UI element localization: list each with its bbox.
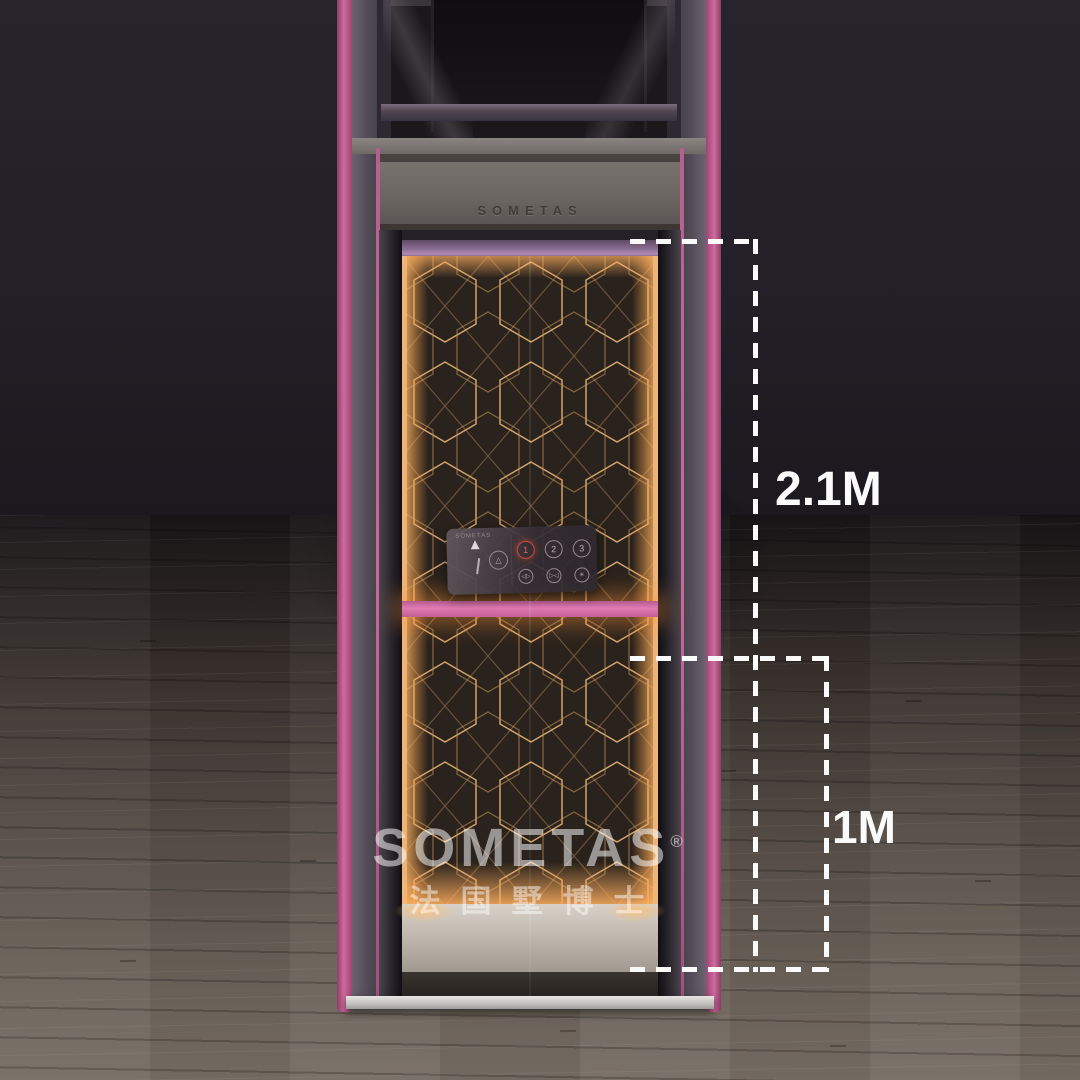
alarm-bell-icon: △ bbox=[495, 556, 501, 565]
floor-seam-mark bbox=[830, 1045, 846, 1047]
floor-seam-mark bbox=[975, 880, 991, 882]
panel-divider bbox=[510, 535, 512, 585]
floor-1-label: 1 bbox=[523, 545, 528, 555]
control-panel: SOMETAS ▲ △ 1 2 3 ◁▷ ▷◁ ✳ bbox=[446, 525, 598, 595]
cabin-base-ledge bbox=[352, 138, 706, 154]
header-top-strip bbox=[378, 154, 682, 162]
rail-height-label: 1M bbox=[832, 800, 896, 854]
door-close-button: ▷◁ bbox=[546, 568, 561, 583]
floor-seam-mark bbox=[905, 700, 921, 702]
dim-line-door-height bbox=[753, 239, 758, 972]
watermark: SOMETAS® 法国墅博士 bbox=[372, 816, 688, 921]
dim-line-rail-height bbox=[824, 656, 829, 972]
floor-2-button: 2 bbox=[544, 540, 562, 558]
floor-3-label: 3 bbox=[579, 543, 584, 553]
watermark-brand: SOMETAS® bbox=[372, 816, 688, 874]
door-header-plate: SOMETAS bbox=[378, 162, 682, 230]
door-open-button: ◁▷ bbox=[518, 569, 533, 584]
registered-mark: ® bbox=[670, 832, 688, 851]
scene: SOMETAS bbox=[0, 0, 1080, 1080]
floor-seam-mark bbox=[300, 860, 316, 862]
aux-icon: ✳ bbox=[579, 571, 584, 578]
floor-indicator-mark bbox=[476, 558, 480, 574]
door-open-icon: ◁▷ bbox=[521, 573, 530, 580]
door-height-label: 2.1M bbox=[775, 462, 882, 517]
watermark-brand-text: SOMETAS bbox=[372, 818, 670, 878]
dim-line-door-top bbox=[630, 239, 758, 244]
floor-3-button: 3 bbox=[572, 539, 590, 557]
floor-seam-mark bbox=[560, 1030, 576, 1032]
dim-line-floor-level bbox=[630, 967, 829, 972]
floor-seam-mark bbox=[140, 640, 156, 642]
door-close-icon: ▷◁ bbox=[549, 572, 558, 579]
door-top-purple-bar bbox=[402, 240, 658, 256]
right-pink-pillar bbox=[706, 0, 721, 1012]
watermark-tagline: 法国墅博士 bbox=[372, 876, 688, 921]
left-pink-pillar bbox=[337, 0, 352, 1012]
glass-cabin-top bbox=[377, 0, 681, 148]
dim-line-rail-level bbox=[630, 656, 830, 661]
cabin-handrail bbox=[381, 104, 677, 121]
door-top-gap bbox=[402, 230, 658, 240]
up-direction-icon: ▲ bbox=[467, 537, 482, 552]
floor-1-button: 1 bbox=[517, 541, 535, 559]
door-sill bbox=[346, 996, 714, 1009]
alarm-button: △ bbox=[489, 550, 508, 569]
floor-seam-mark bbox=[120, 960, 136, 962]
aux-button: ✳ bbox=[574, 567, 589, 582]
floor-2-label: 2 bbox=[551, 544, 556, 554]
